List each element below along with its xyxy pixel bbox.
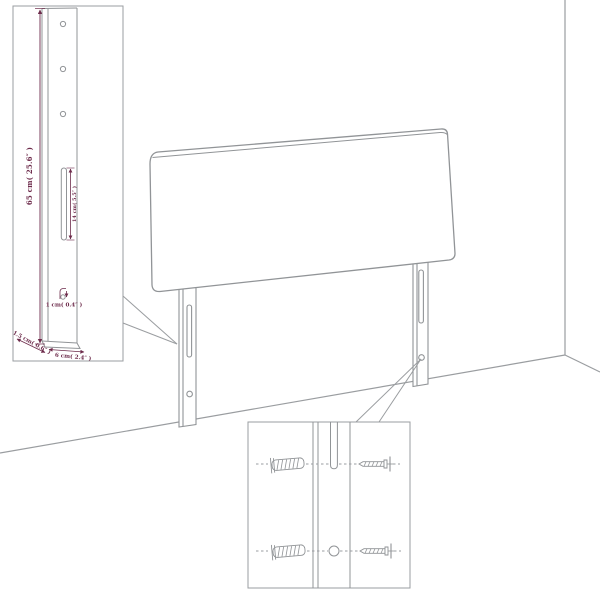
dimension-height-label: 65 cm( 25.6″ ) bbox=[25, 147, 34, 205]
leader-left-top bbox=[123, 296, 177, 344]
floor-line-right bbox=[565, 355, 600, 372]
dimension-slot-label: 14 cm( 5.5″ ) bbox=[71, 186, 78, 222]
headboard-diagram: 65 cm( 25.6″ ) 14 cm( 5.5″ ) 1 cm( 0.4″ … bbox=[0, 0, 600, 600]
detail-box-leg: 65 cm( 25.6″ ) 14 cm( 5.5″ ) 1 cm( 0.4″ … bbox=[11, 6, 123, 362]
detail-box-hardware bbox=[248, 422, 410, 588]
callout-lines bbox=[123, 296, 421, 422]
leg-top-edge bbox=[42, 8, 77, 9]
headboard-panel bbox=[150, 129, 455, 292]
leader-left-bottom bbox=[123, 323, 177, 344]
dimension-hook-label: 1 cm( 0.4″ ) bbox=[46, 302, 83, 309]
detail-box-hardware-frame bbox=[248, 422, 410, 588]
leader-right-a bbox=[356, 359, 421, 422]
leader-right-b bbox=[379, 359, 421, 422]
diagram-canvas: 65 cm( 25.6″ ) 14 cm( 5.5″ ) 1 cm( 0.4″ … bbox=[0, 0, 600, 600]
